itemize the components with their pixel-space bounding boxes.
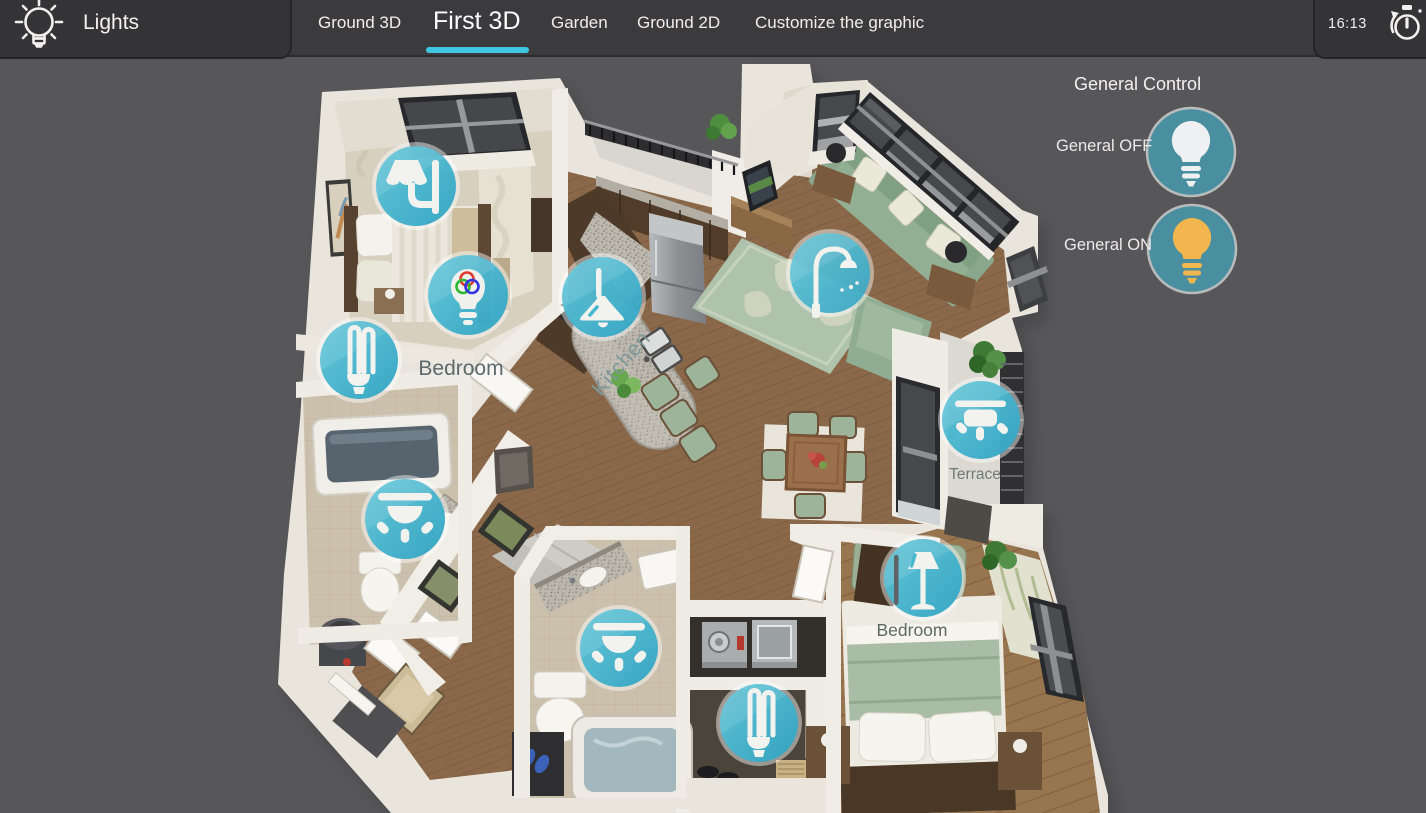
svg-text:Bedroom: Bedroom xyxy=(418,357,503,380)
svg-text:Bedroom: Bedroom xyxy=(876,620,947,640)
svg-text:Terrace: Terrace xyxy=(949,466,1001,483)
